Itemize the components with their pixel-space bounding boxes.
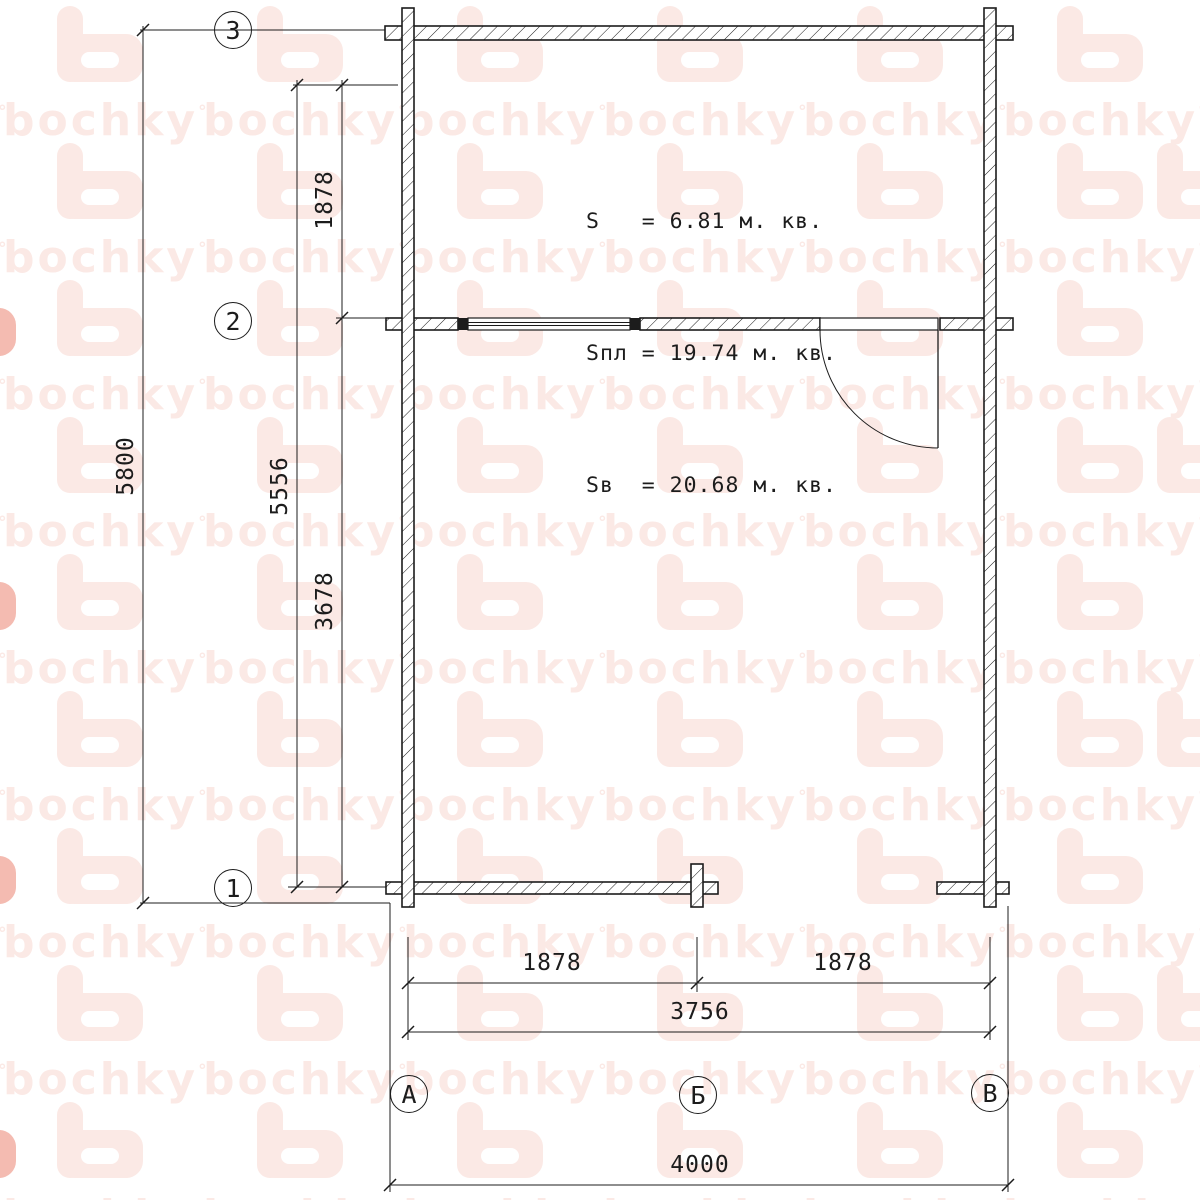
dim-overall-height: 5800 — [113, 436, 139, 495]
grid-bubble-row-1: 1 — [214, 869, 252, 907]
dim-axis-b-v: 1878 — [813, 950, 872, 976]
dim-overall-width: 4000 — [670, 1152, 729, 1178]
grid-bubble-col-a: А — [390, 1075, 428, 1113]
dim-axis-3-2: 1878 — [312, 170, 338, 229]
dim-axis-a-b: 1878 — [522, 950, 581, 976]
grid-bubble-row-3: 3 — [214, 11, 252, 49]
grid-bubble-col-a-label: А — [401, 1080, 416, 1109]
dim-axis-2-1: 3678 — [312, 571, 338, 630]
dim-axes-height: 5556 — [267, 456, 293, 515]
area-line-sv: Sв = 20.68 м. кв. — [586, 464, 837, 508]
plan-labels: S = 6.81 м. кв. Sпл = 19.74 м. кв. Sв = … — [0, 0, 1200, 1200]
dim-axes-width: 3756 — [670, 999, 729, 1025]
area-line-s: S = 6.81 м. кв. — [586, 200, 837, 244]
grid-bubble-row-2-label: 2 — [225, 307, 240, 336]
grid-bubble-col-v: В — [971, 1074, 1009, 1112]
area-line-spl: Sпл = 19.74 м. кв. — [586, 332, 837, 376]
grid-bubble-col-b-label: Б — [690, 1081, 705, 1110]
grid-bubble-row-3-label: 3 — [225, 16, 240, 45]
grid-bubble-row-2: 2 — [214, 302, 252, 340]
grid-bubble-col-b: Б — [679, 1076, 717, 1114]
floor-plan-canvas: bochky°bochky°bochky°bochky°bochky°bochk… — [0, 0, 1200, 1200]
grid-bubble-col-v-label: В — [982, 1079, 997, 1108]
area-summary: S = 6.81 м. кв. Sпл = 19.74 м. кв. Sв = … — [586, 112, 837, 596]
grid-bubble-row-1-label: 1 — [225, 874, 240, 903]
